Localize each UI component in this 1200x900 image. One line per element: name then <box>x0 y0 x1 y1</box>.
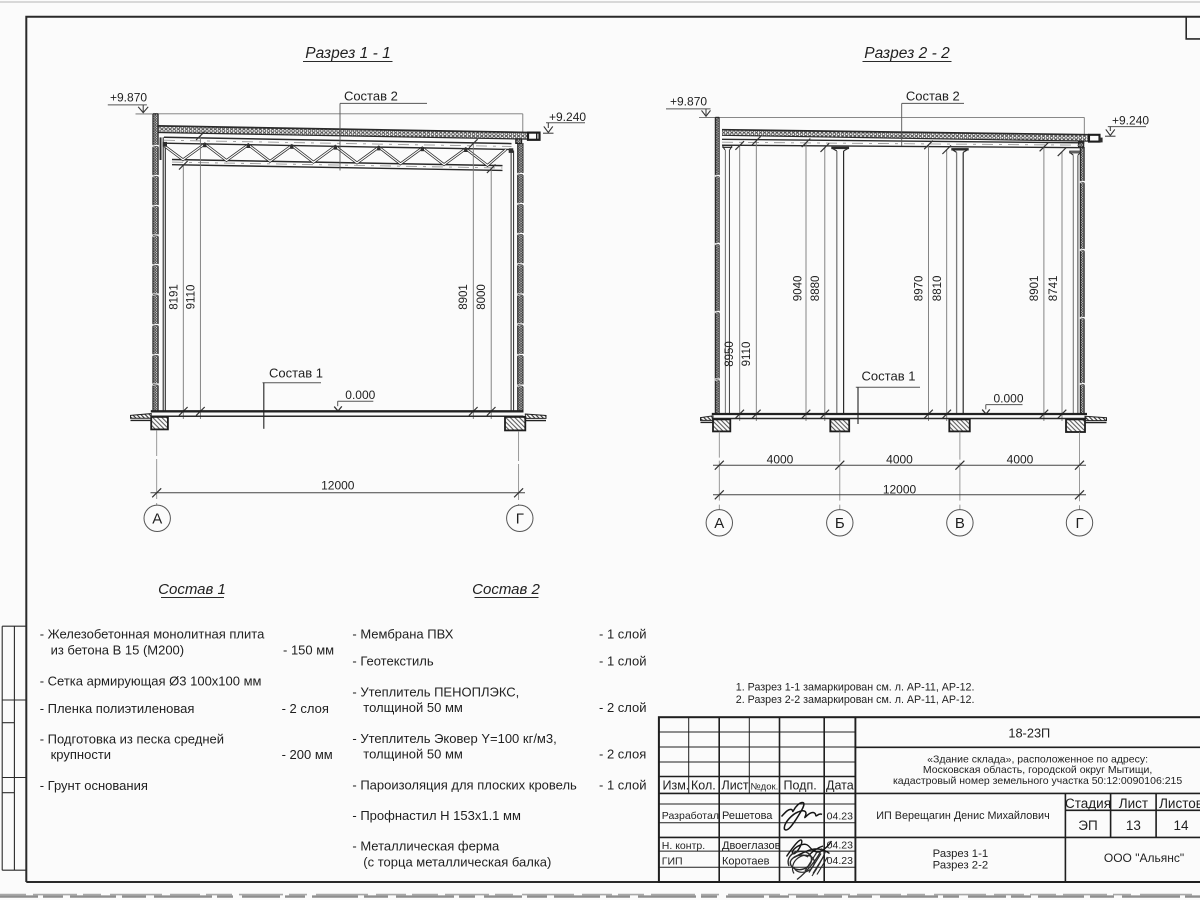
svg-text:13: 13 <box>1126 818 1141 833</box>
svg-text:0.000: 0.000 <box>994 391 1024 405</box>
svg-text:- 150 мм: - 150 мм <box>283 642 334 657</box>
svg-text:Г: Г <box>516 511 524 528</box>
svg-text:Кол.: Кол. <box>691 778 716 792</box>
svg-text:крупности: крупности <box>51 747 111 762</box>
svg-text:Стадия: Стадия <box>1065 796 1111 811</box>
svg-text:04.23: 04.23 <box>827 811 853 823</box>
svg-text:- Утеплитель Эковер Y=100 кг/м: - Утеплитель Эковер Y=100 кг/м3, <box>352 731 556 746</box>
svg-text:Подп.: Подп. <box>784 778 817 792</box>
svg-text:А: А <box>152 511 162 528</box>
svg-text:- Мембрана ПВХ: - Мембрана ПВХ <box>352 627 453 642</box>
svg-text:Двоеглазов: Двоеглазов <box>722 840 781 852</box>
svg-text:(с торца металлическая балка): (с торца металлическая балка) <box>363 854 551 869</box>
svg-text:ГИП: ГИП <box>662 856 683 868</box>
svg-text:- 1 слой: - 1 слой <box>599 627 647 642</box>
svg-text:14: 14 <box>1173 818 1189 833</box>
svg-text:- 2 слой: - 2 слой <box>599 700 647 715</box>
svg-text:Разрез 1-1: Разрез 1-1 <box>933 848 988 860</box>
svg-text:+9.240: +9.240 <box>1112 113 1149 127</box>
svg-text:толщиной 50 мм: толщиной 50 мм <box>363 700 463 715</box>
svg-text:Разрез 1 - 1: Разрез 1 - 1 <box>305 45 390 62</box>
svg-text:8191: 8191 <box>169 284 181 310</box>
svg-text:А: А <box>714 515 724 532</box>
svg-text:В: В <box>955 515 965 532</box>
svg-text:Дата: Дата <box>826 778 854 792</box>
svg-text:Лист: Лист <box>722 778 749 792</box>
svg-text:- Утеплитель ПЕНОПЛЭКС,: - Утеплитель ПЕНОПЛЭКС, <box>352 685 519 700</box>
svg-text:9110: 9110 <box>186 285 198 310</box>
svg-text:- Грунт основания: - Грунт основания <box>40 778 148 793</box>
svg-text:+9.870: +9.870 <box>110 91 147 105</box>
svg-text:Состав 2: Состав 2 <box>906 89 960 104</box>
svg-text:4000: 4000 <box>767 453 794 467</box>
svg-text:- Железобетонная монолитная п: - Железобетонная монолитная плита <box>40 627 265 642</box>
svg-text:Лист: Лист <box>1119 796 1148 811</box>
svg-text:8901: 8901 <box>458 284 470 310</box>
svg-text:Состав 1: Состав 1 <box>269 366 323 381</box>
svg-text:Г: Г <box>1075 515 1083 532</box>
svg-text:- 1 слой: - 1 слой <box>599 654 647 669</box>
svg-text:толщиной 50 мм: толщиной 50 мм <box>363 747 463 762</box>
svg-text:0.000: 0.000 <box>345 388 375 402</box>
svg-text:1. Разрез 1-1 замаркирован см.: 1. Разрез 1-1 замаркирован см. л. АР-11,… <box>736 681 975 693</box>
svg-text:из бетона В 15 (М200): из бетона В 15 (М200) <box>51 642 185 657</box>
svg-text:8950: 8950 <box>724 341 736 367</box>
svg-text:12000: 12000 <box>883 483 917 497</box>
svg-text:- Подготовка из песка средней: - Подготовка из песка средней <box>40 731 224 746</box>
svg-text:- Пленка полиэтиленовая: - Пленка полиэтиленовая <box>40 701 195 716</box>
svg-text:8901: 8901 <box>1029 276 1041 302</box>
svg-text:Состав 1: Состав 1 <box>158 581 226 598</box>
svg-text:- Профнастил Н 153х1.1 мм: - Профнастил Н 153х1.1 мм <box>352 808 521 823</box>
svg-text:Состав 2: Состав 2 <box>472 581 540 598</box>
svg-text:№док.: №док. <box>750 781 778 792</box>
svg-text:12000: 12000 <box>321 479 355 493</box>
svg-text:ЭП: ЭП <box>1078 818 1097 833</box>
svg-text:18-23П: 18-23П <box>1008 726 1050 741</box>
svg-text:4000: 4000 <box>1007 453 1034 467</box>
svg-text:9110: 9110 <box>741 342 753 367</box>
svg-text:Решетова: Решетова <box>722 810 773 822</box>
svg-text:Разработал: Разработал <box>662 810 719 822</box>
svg-text:04.23: 04.23 <box>827 855 853 867</box>
svg-text:8810: 8810 <box>932 276 944 302</box>
svg-text:Н. контр.: Н. контр. <box>662 840 705 852</box>
svg-text:+9.870: +9.870 <box>670 95 707 109</box>
svg-text:Листов: Листов <box>1159 796 1200 811</box>
svg-text:9040: 9040 <box>793 276 805 302</box>
svg-text:- Металлическая ферма: - Металлическая ферма <box>352 839 500 854</box>
svg-text:- 2 слоя: - 2 слоя <box>282 701 329 716</box>
svg-text:- Геотекстиль: - Геотекстиль <box>352 654 433 669</box>
svg-text:- 2 слоя: - 2 слоя <box>599 747 646 762</box>
svg-text:2. Разрез 2-2 замаркирован см.: 2. Разрез 2-2 замаркирован см. л. АР-11,… <box>736 694 975 706</box>
svg-text:8970: 8970 <box>914 276 926 302</box>
svg-text:8880: 8880 <box>810 276 822 302</box>
svg-text:4000: 4000 <box>886 453 913 467</box>
svg-text:кадастровый номер земельного у: кадастровый номер земельного участка 50:… <box>893 775 1182 787</box>
svg-text:- 200 мм: - 200 мм <box>282 747 333 762</box>
svg-text:Разрез 2 - 2: Разрез 2 - 2 <box>864 45 950 62</box>
svg-text:Коротаев: Коротаев <box>722 856 770 868</box>
svg-text:- Пароизоляция для плоских кро: - Пароизоляция для плоских кровель <box>352 777 577 792</box>
svg-text:8741: 8741 <box>1048 276 1060 302</box>
svg-text:ООО "Альянс": ООО "Альянс" <box>1104 851 1184 865</box>
svg-text:Разрез 2-2: Разрез 2-2 <box>933 860 988 872</box>
svg-text:8000: 8000 <box>476 284 488 310</box>
svg-text:ИП Верещагин Денис Михайлович: ИП Верещагин Денис Михайлович <box>876 810 1049 822</box>
svg-text:- Сетка армирующая Ø3 100х100: - Сетка армирующая Ø3 100х100 мм <box>40 673 262 688</box>
svg-text:Состав 1: Состав 1 <box>862 369 916 384</box>
svg-text:- 1 слой: - 1 слой <box>599 777 647 792</box>
svg-text:Б: Б <box>835 515 845 532</box>
svg-text:Изм.: Изм. <box>663 778 690 792</box>
svg-text:Состав 2: Состав 2 <box>344 89 398 104</box>
svg-text:+9.240: +9.240 <box>549 110 586 124</box>
